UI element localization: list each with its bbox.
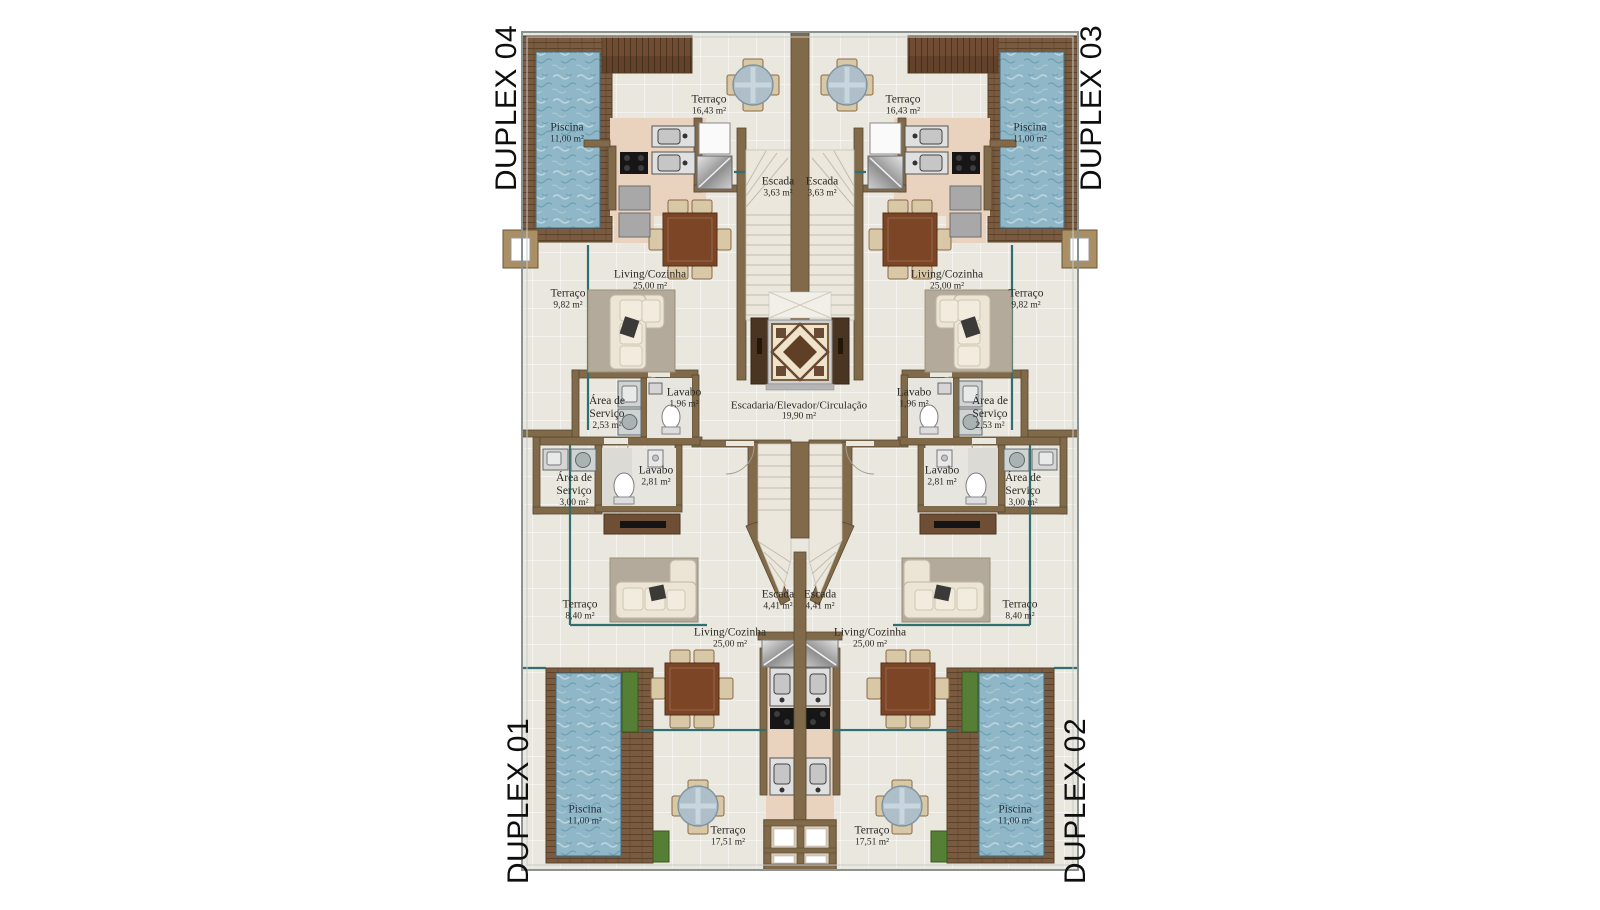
floor-plan-drawing	[0, 0, 1600, 910]
room-label-terraco-982-left: Terraço9,82 m²	[551, 287, 586, 311]
room-label-living-top-left: Living/Cozinha25,00 m²	[614, 268, 686, 292]
cooktop	[770, 708, 794, 729]
sink	[649, 383, 662, 394]
room-label-escadaria-elevador: Escadaria/Elevador/Circulação19,90 m²	[731, 400, 867, 423]
room-label-terraco-840-left: Terraço8,40 m²	[563, 598, 598, 622]
laundry-sink	[547, 452, 561, 465]
unit-label-duplex-04: DUPLEX 04	[490, 25, 524, 191]
room-label-servico-300-right: Área de Serviço3,00 m²	[993, 472, 1053, 508]
room-label-living-bottom-right: Living/Cozinha25,00 m²	[834, 626, 906, 650]
floor-plan-page: DUPLEX 04 DUPLEX 03 DUPLEX 01 DUPLEX 02 …	[0, 0, 1600, 910]
room-label-terraco-top-left: Terraço16,43 m²	[692, 93, 727, 117]
room-label-terraco-982-right: Terraço9,82 m²	[1009, 287, 1044, 311]
room-label-piscina-top-right: Piscina11,00 m²	[1013, 121, 1047, 145]
unit-label-duplex-01: DUPLEX 01	[502, 718, 536, 884]
room-label-escada-441-left: Escada4,41 m²	[762, 588, 795, 612]
room-label-servico-253-right: Área de Serviço2,53 m²	[960, 395, 1020, 431]
room-label-servico-300-left: Área de Serviço3,00 m²	[544, 472, 604, 508]
room-label-piscina-top-left: Piscina11,00 m²	[550, 121, 584, 145]
room-label-servico-253-left: Área de Serviço2,53 m²	[577, 395, 637, 431]
unit-label-duplex-02: DUPLEX 02	[1059, 718, 1093, 884]
sink	[774, 674, 790, 694]
cabinet	[619, 186, 650, 210]
cabinet	[619, 213, 650, 237]
balcony-pillar	[503, 230, 538, 268]
toilet	[614, 473, 634, 499]
sink	[774, 764, 790, 784]
bottom-entry-structure	[764, 820, 836, 870]
room-label-lavabo-281-right: Lavabo2,81 m²	[925, 464, 959, 488]
sofa-lower	[610, 558, 698, 622]
pool-water	[556, 673, 621, 856]
washer	[576, 453, 591, 468]
room-label-escada-upper-right: Escada3,63 m²	[806, 175, 839, 199]
room-label-escada-441-right: Escada4,41 m²	[804, 588, 837, 612]
unit-label-duplex-03: DUPLEX 03	[1075, 25, 1109, 191]
room-label-terraco-top-right: Terraço16,43 m²	[886, 93, 921, 117]
room-label-piscina-bottom-left: Piscina11,00 m²	[568, 803, 602, 827]
room-label-lavabo-196-left: Lavabo1,96 m²	[667, 386, 701, 410]
room-label-terraco-840-right: Terraço8,40 m²	[1003, 598, 1038, 622]
room-label-terraco-1751-left: Terraço17,51 m²	[711, 824, 746, 848]
dining-table	[663, 213, 717, 266]
sink	[658, 129, 680, 144]
room-label-piscina-bottom-right: Piscina11,00 m²	[998, 803, 1032, 827]
room-label-terraco-1751-right: Terraço17,51 m²	[855, 824, 890, 848]
appliance	[699, 123, 730, 154]
dining-table	[665, 663, 719, 715]
room-label-lavabo-196-right: Lavabo1,96 m²	[897, 386, 931, 410]
sofa-upper	[588, 290, 675, 372]
room-label-living-top-right: Living/Cozinha25,00 m²	[911, 268, 983, 292]
room-label-escada-upper-left: Escada3,63 m²	[762, 175, 795, 199]
room-label-living-bottom-left: Living/Cozinha25,00 m²	[694, 626, 766, 650]
cooktop	[620, 152, 648, 174]
sideboard	[604, 514, 680, 534]
planter	[622, 672, 638, 732]
planter	[653, 831, 669, 862]
room-label-lavabo-281-left: Lavabo2,81 m²	[639, 464, 673, 488]
sink	[658, 155, 680, 171]
